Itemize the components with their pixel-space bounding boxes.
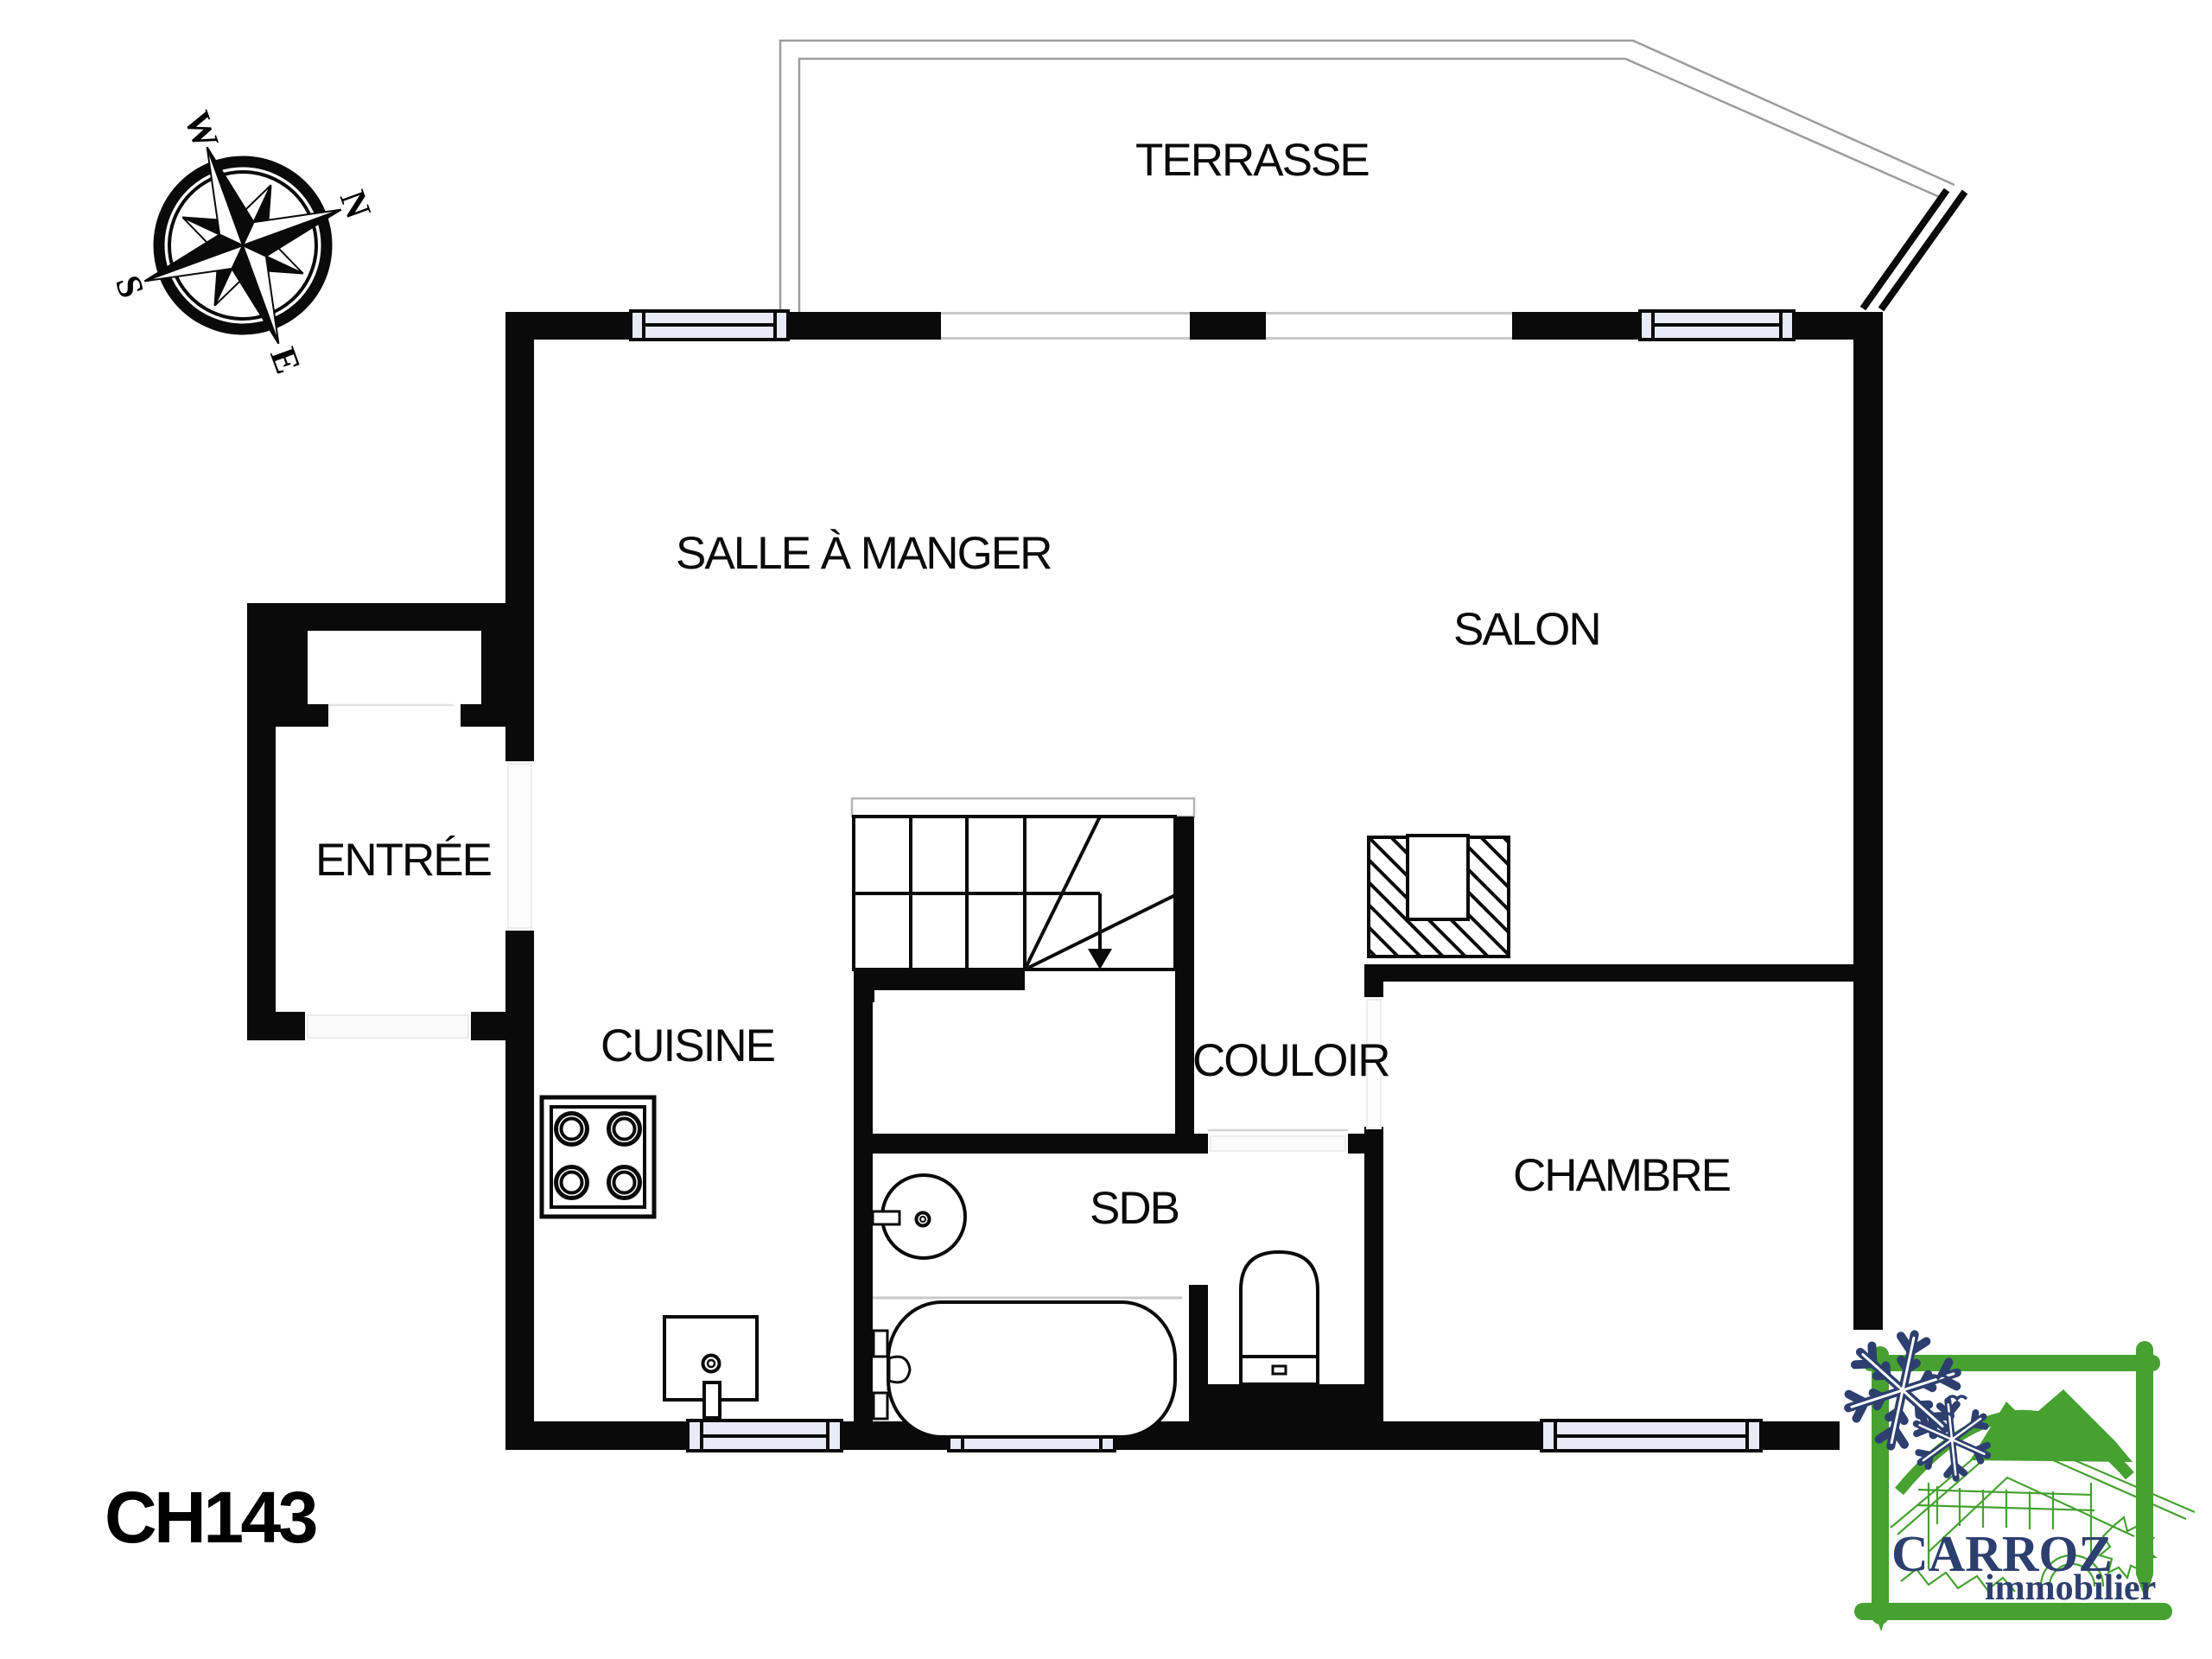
svg-text:SDB: SDB — [1090, 1183, 1179, 1234]
svg-text:COULOIR: COULOIR — [1192, 1035, 1389, 1086]
svg-text:immobilier: immobilier — [1985, 1568, 2156, 1608]
svg-text:SALON: SALON — [1453, 604, 1600, 655]
svg-text:SALLE À MANGER: SALLE À MANGER — [676, 528, 1051, 579]
svg-text:CHAMBRE: CHAMBRE — [1513, 1150, 1731, 1201]
svg-text:CUISINE: CUISINE — [601, 1020, 775, 1071]
svg-text:CH143: CH143 — [105, 1477, 316, 1558]
svg-text:ENTRÉE: ENTRÉE — [315, 835, 492, 886]
svg-text:TERRASSE: TERRASSE — [1135, 135, 1369, 186]
